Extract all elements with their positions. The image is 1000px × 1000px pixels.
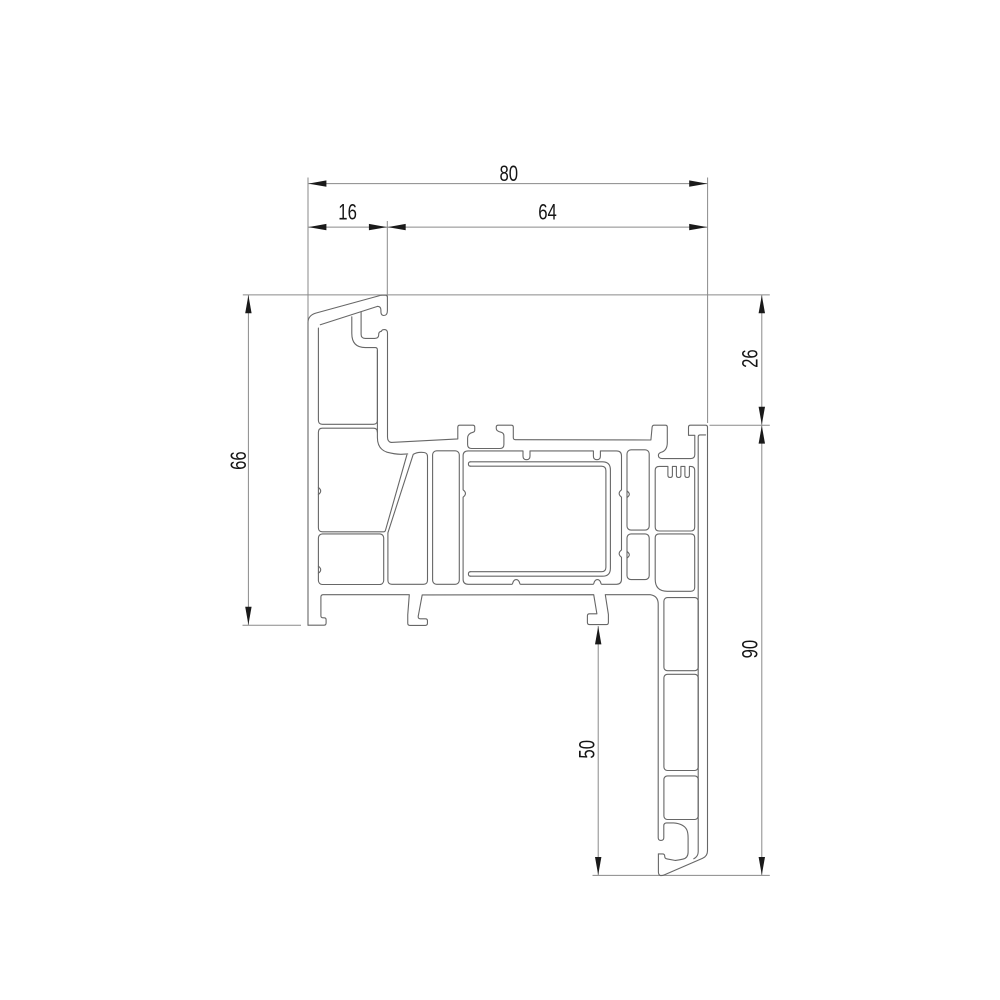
svg-text:64: 64 [538,199,557,224]
svg-text:66: 66 [226,451,251,470]
svg-text:26: 26 [738,349,763,368]
svg-text:80: 80 [500,161,519,186]
svg-text:50: 50 [575,740,600,759]
svg-text:90: 90 [738,640,763,659]
svg-text:16: 16 [338,199,357,224]
